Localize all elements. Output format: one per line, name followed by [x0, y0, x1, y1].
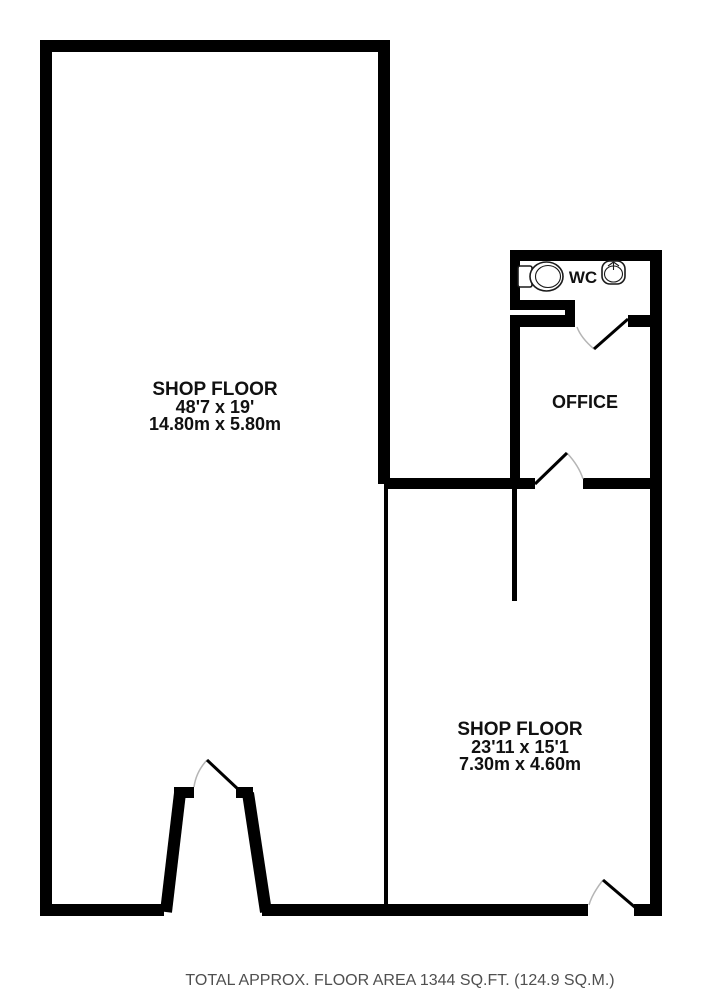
floor-plan: SHOP FLOOR 48'7 x 19' 14.80m x 5.80m SHO…	[0, 0, 711, 1000]
wall-bottom-left	[40, 904, 164, 916]
partition-wall-right	[583, 478, 662, 489]
entrance-vestibule	[166, 760, 266, 912]
wall-divider-thin	[384, 478, 388, 910]
total-area-caption: TOTAL APPROX. FLOOR AREA 1344 SQ.FT. (12…	[185, 972, 614, 989]
wc-name: WC	[569, 268, 597, 287]
walls-main-shop	[40, 40, 662, 916]
rear-door-arc	[589, 880, 603, 905]
vestibule-left-wall	[166, 793, 180, 912]
partition-stub	[512, 489, 517, 601]
office-door-leaf	[535, 453, 567, 484]
wc-bottom-right-wall	[628, 315, 650, 327]
wall-right	[650, 250, 662, 916]
entry-door-arc	[194, 760, 207, 787]
wall-top	[40, 40, 390, 52]
entry-door-leaf	[207, 760, 240, 791]
rear-door-leaf	[603, 880, 637, 909]
toilet-icon	[518, 262, 563, 291]
wc-door-leaf	[594, 319, 628, 349]
wall-divider-thick	[378, 40, 390, 484]
partition-wall-left	[384, 478, 535, 489]
sink-icon	[602, 261, 625, 284]
vestibule-right-wall	[248, 793, 266, 912]
wall-bottom-mid	[262, 904, 588, 916]
vestibule-left-stub	[174, 787, 194, 798]
wc-top-wall	[510, 250, 662, 261]
office-name: OFFICE	[552, 392, 618, 412]
office-left-wall	[510, 315, 520, 489]
main-shop-size-metric: 14.80m x 5.80m	[149, 414, 281, 434]
office-door-arc	[567, 453, 583, 479]
rear-shop-size-metric: 7.30m x 4.60m	[459, 754, 581, 774]
walls-wc-office	[384, 250, 662, 916]
wall-left	[40, 40, 52, 916]
wc-door-arc	[577, 327, 594, 349]
